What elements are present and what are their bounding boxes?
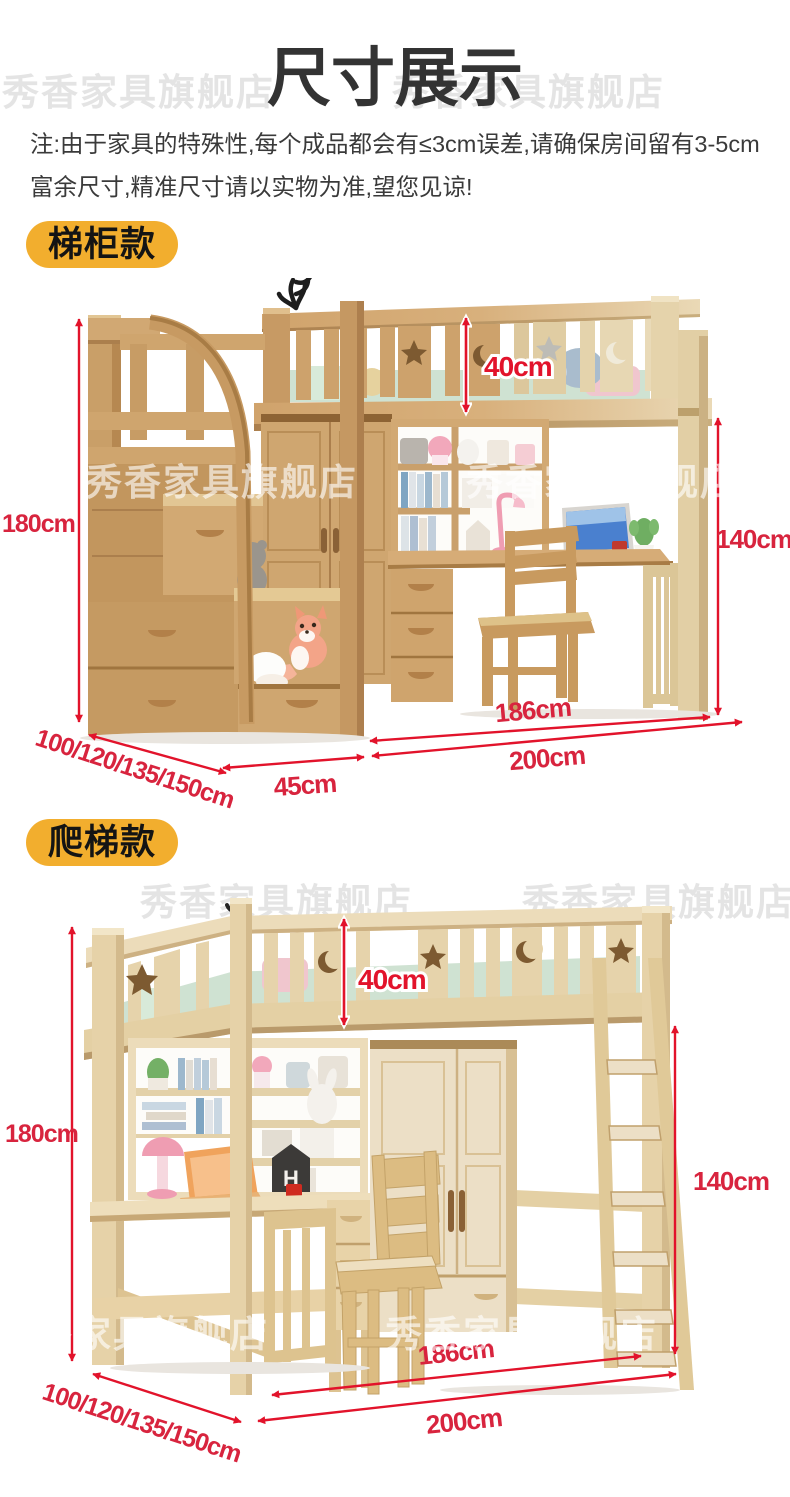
svg-text:45cm: 45cm bbox=[273, 768, 337, 802]
svg-text:180cm: 180cm bbox=[2, 510, 75, 538]
svg-text:40cm: 40cm bbox=[484, 351, 552, 382]
svg-text:140cm: 140cm bbox=[716, 524, 790, 554]
svg-text:180cm: 180cm bbox=[5, 1120, 78, 1148]
svg-text:100/120/135/150cm: 100/120/135/150cm bbox=[39, 1378, 244, 1469]
svg-text:140cm: 140cm bbox=[693, 1166, 769, 1196]
svg-text:200cm: 200cm bbox=[425, 1402, 504, 1440]
svg-text:40cm: 40cm bbox=[358, 964, 426, 995]
svg-text:186cm: 186cm bbox=[494, 692, 572, 729]
svg-text:200cm: 200cm bbox=[508, 740, 586, 777]
